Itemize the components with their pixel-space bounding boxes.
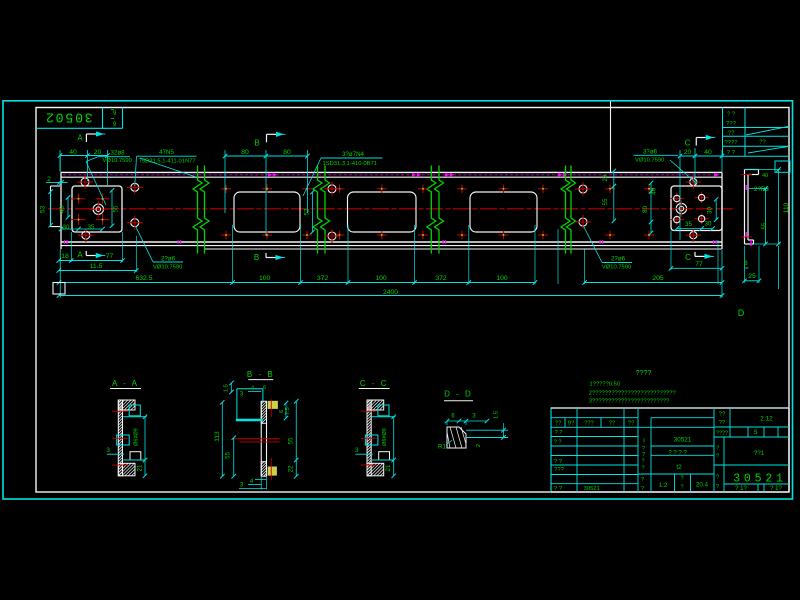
svg-text:??: ?? <box>628 421 635 427</box>
svg-text:A - A: A - A <box>112 379 139 388</box>
svg-text:40: 40 <box>704 149 712 156</box>
svg-text:D - D: D - D <box>444 390 473 399</box>
svg-text:6: 6 <box>112 120 116 127</box>
svg-text:75D31.5.1-411-01N77: 75D31.5.1-411-01N77 <box>139 158 196 164</box>
svg-text:47N5: 47N5 <box>159 149 174 156</box>
svg-text:t2: t2 <box>676 464 682 471</box>
svg-text:22: 22 <box>288 465 295 472</box>
svg-text:55: 55 <box>288 437 295 444</box>
svg-text:100: 100 <box>496 275 508 282</box>
svg-text:?: ? <box>716 475 719 481</box>
svg-text:53: 53 <box>40 206 47 214</box>
svg-text:C - C: C - C <box>360 379 389 388</box>
svg-text:??: ?? <box>728 130 735 136</box>
svg-text:32ø8: 32ø8 <box>110 150 125 157</box>
svg-text:VØ10.7590: VØ10.7590 <box>602 264 631 270</box>
svg-text:C: C <box>685 253 691 262</box>
svg-text:3?ø7N4: 3?ø7N4 <box>342 151 365 158</box>
svg-text:20.4: 20.4 <box>696 482 709 489</box>
svg-text:80: 80 <box>241 149 249 156</box>
svg-text:80: 80 <box>283 149 291 156</box>
svg-text:20: 20 <box>94 149 102 156</box>
svg-text:9?: 9? <box>568 421 575 427</box>
svg-text:18: 18 <box>61 253 69 260</box>
svg-text:100: 100 <box>375 275 387 282</box>
svg-text:372: 372 <box>435 275 447 282</box>
svg-text:1.5: 1.5 <box>224 384 230 392</box>
svg-text:VØ10.7590: VØ10.7590 <box>153 264 182 270</box>
svg-text:?: ? <box>641 477 644 483</box>
svg-text:55: 55 <box>761 222 768 229</box>
svg-text:3?ø6: 3?ø6 <box>643 149 658 156</box>
svg-text:?: ? <box>641 466 644 472</box>
svg-text:? ?: ? ? <box>727 150 736 156</box>
svg-text:?: ? <box>641 459 644 465</box>
svg-text:21: 21 <box>385 464 392 471</box>
svg-text:? ?: ? ? <box>727 112 736 118</box>
svg-text:113: 113 <box>214 431 221 442</box>
svg-text:55: 55 <box>225 451 232 458</box>
svg-text:??1: ??1 <box>754 450 765 457</box>
svg-text:? 1?: ? 1? <box>735 486 747 492</box>
svg-text:2?ø6: 2?ø6 <box>161 255 176 262</box>
svg-text:3: 3 <box>106 447 110 454</box>
svg-text:????: ???? <box>636 370 652 377</box>
svg-text:???: ??? <box>584 421 594 427</box>
svg-text:40: 40 <box>69 149 77 156</box>
svg-text:? 1?: ? 1? <box>770 486 782 492</box>
svg-text:11.5: 11.5 <box>90 263 103 270</box>
svg-text:35: 35 <box>88 224 95 231</box>
svg-text:30502: 30502 <box>44 109 93 124</box>
svg-text:205: 205 <box>652 275 664 282</box>
svg-text:2??????????????????????????: 2?????????????????????????? <box>589 391 677 397</box>
svg-text:2.12: 2.12 <box>760 416 773 423</box>
svg-text:Ø6#Ø9: Ø6#Ø9 <box>382 428 388 446</box>
svg-text:? ?: ? ? <box>554 486 563 492</box>
svg-text:30521: 30521 <box>674 437 692 444</box>
svg-text:21: 21 <box>137 464 144 471</box>
svg-text:30: 30 <box>63 224 70 231</box>
svg-text:110: 110 <box>783 202 790 213</box>
svg-text:3: 3 <box>355 447 359 454</box>
svg-text:??: ?? <box>609 421 616 427</box>
svg-text:40: 40 <box>651 187 658 194</box>
svg-text:Ø6#Ø9: Ø6#Ø9 <box>134 428 140 446</box>
svg-text:30: 30 <box>707 207 714 214</box>
svg-text:VØ10.7590: VØ10.7590 <box>635 157 664 163</box>
svg-text:?: ? <box>716 484 719 490</box>
svg-text:??: ?? <box>759 140 766 146</box>
svg-text:1?????0.50: 1?????0.50 <box>590 382 621 388</box>
svg-text:??: ?? <box>719 412 726 418</box>
svg-text:80: 80 <box>642 206 649 213</box>
svg-text:40: 40 <box>59 206 66 213</box>
svg-text:C: C <box>685 139 691 148</box>
svg-text:???: ??? <box>554 467 564 473</box>
svg-text:????: ???? <box>716 431 728 437</box>
svg-text:372: 372 <box>317 275 329 282</box>
svg-text:?: ? <box>716 446 719 452</box>
svg-text:?: ? <box>680 476 683 482</box>
svg-text:30521: 30521 <box>733 473 787 486</box>
svg-text:? ?: ? ? <box>554 430 563 436</box>
svg-text:1.5: 1.5 <box>494 411 500 419</box>
svg-text:A: A <box>77 134 83 143</box>
svg-text:B - B: B - B <box>247 370 275 379</box>
svg-text:77: 77 <box>106 253 114 260</box>
svg-text:B: B <box>254 253 259 262</box>
svg-text:2400: 2400 <box>383 289 398 296</box>
svg-text:632.5: 632.5 <box>135 275 152 282</box>
svg-text:A: A <box>77 251 83 260</box>
svg-text:??: ?? <box>719 420 726 426</box>
svg-text:?: ? <box>642 452 645 458</box>
svg-text:23: 23 <box>602 174 609 181</box>
svg-text:? ?: ? ? <box>554 440 563 446</box>
svg-text:77: 77 <box>695 261 703 268</box>
svg-text:?: ? <box>641 486 644 492</box>
svg-text:?: ? <box>716 454 719 460</box>
svg-text:100: 100 <box>259 275 271 282</box>
svg-text:R1: R1 <box>438 444 446 451</box>
svg-text:1:2: 1:2 <box>659 482 668 489</box>
svg-text:55: 55 <box>602 198 609 205</box>
svg-text:30: 30 <box>705 221 712 228</box>
svg-text:B: B <box>254 139 259 148</box>
svg-text:2: 2 <box>476 444 482 447</box>
svg-text:3????????????????????????: 3???????????????????????? <box>589 399 670 405</box>
svg-text:????: ???? <box>725 140 739 146</box>
svg-text:52: 52 <box>304 208 311 215</box>
svg-text:VØ10.7590: VØ10.7590 <box>103 158 132 164</box>
svg-text:S: S <box>753 429 757 436</box>
svg-text:I: I <box>643 438 645 445</box>
svg-text:40: 40 <box>762 173 768 179</box>
svg-text:D: D <box>738 308 745 318</box>
svg-text:55: 55 <box>113 205 120 212</box>
svg-text:30521: 30521 <box>584 486 600 492</box>
svg-text:1SD31.3.1-410-0B71: 1SD31.3.1-410-0B71 <box>323 161 377 167</box>
svg-text:25: 25 <box>748 273 756 280</box>
svg-text:???: ??? <box>726 121 736 127</box>
svg-text:? ? ? ?: ? ? ? ? <box>668 451 687 457</box>
svg-text:8: 8 <box>744 260 748 267</box>
svg-text:20: 20 <box>684 149 692 156</box>
svg-text:2?ø6: 2?ø6 <box>611 255 626 262</box>
svg-text:6: 6 <box>263 385 266 391</box>
svg-text:??: ?? <box>555 421 562 427</box>
svg-text:35: 35 <box>685 221 692 228</box>
svg-text:? ?: ? ? <box>554 459 563 465</box>
svg-text:?: ? <box>680 485 683 491</box>
